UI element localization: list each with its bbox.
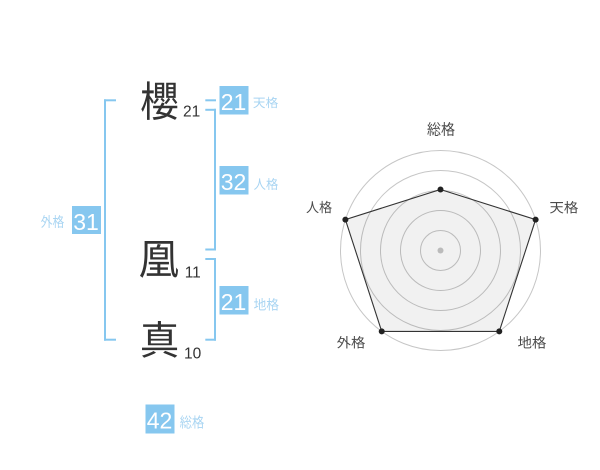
svg-text:32: 32 — [221, 169, 247, 195]
svg-text:21: 21 — [221, 89, 247, 115]
svg-text:11: 11 — [185, 264, 201, 281]
svg-text:10: 10 — [184, 345, 202, 362]
svg-text:21: 21 — [221, 289, 247, 315]
svg-text:31: 31 — [73, 209, 99, 235]
svg-text:21: 21 — [183, 104, 200, 121]
svg-text:42: 42 — [147, 408, 173, 434]
